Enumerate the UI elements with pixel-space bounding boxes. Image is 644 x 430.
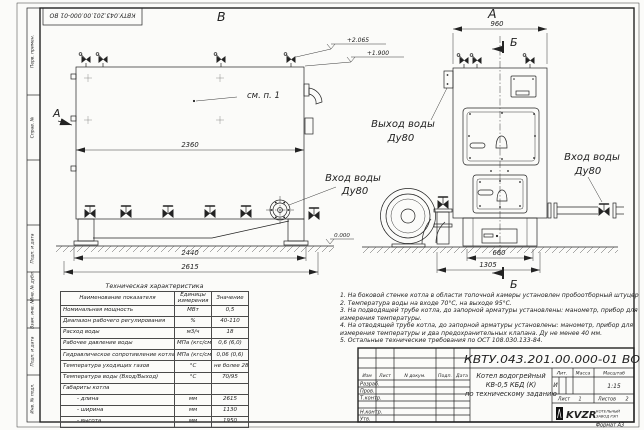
dim-2440: 2440 — [181, 249, 198, 257]
inlet-flange-side — [266, 196, 294, 224]
note-line: 1. На боковой стенке котла в области топ… — [340, 292, 638, 300]
spec-cell-value: не более 280 — [212, 361, 249, 372]
company-logo-text: KVZR — [566, 410, 596, 421]
rear-nozzle-flange — [304, 84, 309, 96]
spec-col-value: Значение — [212, 292, 249, 306]
dim-2360: 2360 — [181, 141, 198, 149]
spec-cell-units: МВт — [175, 306, 212, 317]
sheet-label: Лист — [557, 397, 570, 403]
see-note-label: см. п. 1 — [247, 91, 280, 101]
section-b-top-label: Б — [510, 36, 518, 49]
outlet-flange-front — [444, 71, 453, 88]
rotated-stamp: КВТУ.043.201.00.000-01 ВО — [49, 12, 135, 19]
view-arrow-a-label: А — [52, 107, 61, 120]
spec-cell-name: Габариты котла — [61, 383, 175, 394]
view-b-side: В см. п. 1 А 2360 — [52, 9, 404, 275]
spec-row: Расход водым3/ч18 — [61, 328, 249, 339]
dim-1305: 1305 — [479, 261, 496, 269]
drawing-sheet: Перв. примен. Справ. № Подп. и дата Инв.… — [0, 0, 644, 430]
spec-cell-value: 0,5 — [212, 306, 249, 317]
dim-960: 960 — [491, 20, 504, 28]
elevation-1900: +1.900 — [367, 50, 389, 57]
doc-title-line3: по техническому заданию — [465, 390, 557, 398]
sig-header: Дата — [455, 373, 468, 379]
spec-cell-value: 2615 — [212, 394, 249, 405]
spec-row: - ширинамм1130 — [61, 405, 249, 416]
margin-label: Инв. № подл. — [30, 383, 36, 413]
spec-cell-name: Температура уходящих газов — [61, 361, 175, 372]
sig-row-label: Т.контр. — [360, 396, 382, 402]
spec-col-name: Наименование показателя — [61, 292, 175, 306]
doc-title-line1: Котел водогрейный — [476, 372, 546, 380]
mass-header: Масса — [576, 371, 591, 377]
label-inlet-side-1: Вход воды — [325, 173, 381, 184]
view-a-front: А 960 Б — [362, 6, 624, 291]
sheets-value: 2 — [625, 397, 628, 403]
margin-label: Инв. № дубл. — [30, 271, 36, 301]
dim-2615: 2615 — [181, 263, 198, 271]
sig-row-label: Утв. — [360, 417, 371, 423]
spec-cell-units — [175, 383, 212, 394]
sig-row-label: Разраб. — [360, 382, 380, 388]
spec-row: Температура уходящих газов°Сне более 280 — [61, 361, 249, 372]
view-a-label: А — [487, 6, 497, 21]
company-logo: KVZR КОТЕЛЬНЫЙ ЗАВОД РЭП — [556, 407, 620, 421]
scale-value: 1:15 — [607, 383, 621, 390]
spec-cell-name: Расход воды — [61, 328, 175, 339]
format-label: Формат А3 — [596, 423, 624, 429]
doc-number: КВТУ.043.201.00.000-01 ВО — [464, 353, 640, 366]
label-inlet-front-1: Вход воды — [564, 152, 620, 163]
spec-row: Диапазон рабочего регулирования%40-110 — [61, 317, 249, 328]
label-inlet-front-2: Ду80 — [574, 166, 601, 177]
spec-cell-name: Диапазон рабочего регулирования — [61, 317, 175, 328]
doc-title-line2: КВ-0,5 КБД (К) — [486, 381, 536, 389]
spec-cell-units: м3/ч — [175, 328, 212, 339]
fan-pipe-valve — [434, 197, 452, 244]
sig-header: Изм — [362, 373, 372, 379]
sig-row-label: Н.контр. — [360, 410, 382, 416]
spec-row: Рабочее давление водыМПа (кгс/см2)0,6 (6… — [61, 339, 249, 350]
spec-cell-units: % — [175, 317, 212, 328]
spec-cell-value: 1130 — [212, 405, 249, 416]
note-line: 4. На отводящей трубе котла, до запорной… — [340, 322, 638, 330]
sig-header: Лист — [378, 373, 391, 379]
sig-header: N докум. — [404, 373, 425, 379]
inlet-pipe-front — [548, 203, 624, 218]
scale-header: Масштаб — [603, 371, 625, 377]
blower-fan — [381, 189, 446, 248]
spec-cell-units: мм — [175, 405, 212, 416]
spec-cell-units: °С — [175, 361, 212, 372]
spec-table: Техническая характеристика Наименование … — [60, 283, 249, 428]
spec-table-body: Номинальная мощностьМВт0,5Диапазон рабоч… — [61, 306, 249, 428]
spec-cell-units: мм — [175, 394, 212, 405]
elevation-0000: 0.000 — [334, 233, 350, 239]
label-outlet-front-1: Выход воды — [371, 119, 435, 130]
spec-cell-name: Рабочее давление воды — [61, 339, 175, 350]
spec-cell-value: 40-110 — [212, 317, 249, 328]
spec-cell-value — [212, 383, 249, 394]
spec-cell-name: - высота — [61, 416, 175, 427]
margin-label: Справ. № — [30, 116, 36, 138]
spec-col-units: Единицы измерения — [175, 292, 212, 306]
margin-label: Взам. инв. № — [30, 299, 36, 329]
spec-cell-units: °С — [175, 372, 212, 383]
spec-cell-units: мм — [175, 416, 212, 427]
spec-cell-name: Гидравлическое сопротивление котла — [61, 350, 175, 361]
section-b-bottom-label: Б — [510, 278, 518, 291]
company-name-line1: КОТЕЛЬНЫЙ — [596, 409, 620, 414]
notes-block: 1. На боковой стенке котла в области топ… — [340, 292, 638, 345]
spec-row: Габариты котла — [61, 383, 249, 394]
label-outlet-front-2: Ду80 — [387, 133, 414, 144]
spec-cell-value: 18 — [212, 328, 249, 339]
spec-cell-units: МПа (кгс/см2) — [175, 350, 212, 361]
margin-label: Подп. и дата — [30, 233, 36, 263]
spec-cell-name: - длина — [61, 394, 175, 405]
spec-cell-value: 0,6 (6,0) — [212, 339, 249, 350]
spec-cell-name: Температура воды (Вход/Выход) — [61, 372, 175, 383]
sheet-value: 1 — [578, 397, 581, 403]
margin-label: Перв. примен. — [30, 35, 36, 68]
view-b-label: В — [217, 9, 226, 24]
spec-row: - высотамм1950 — [61, 416, 249, 427]
spec-table-title: Техническая характеристика — [60, 283, 249, 290]
sheets-label: Листов — [597, 397, 616, 403]
lit-header: Лит. — [556, 371, 568, 377]
spec-cell-value: 0,06 (0,6) — [212, 350, 249, 361]
label-inlet-side-2: Ду80 — [341, 186, 368, 197]
dim-660: 660 — [493, 249, 506, 257]
spec-cell-name: - ширина — [61, 405, 175, 416]
company-name-line2: ЗАВОД РЭП — [596, 415, 618, 419]
lower-door — [473, 175, 527, 213]
spec-row: Гидравлическое сопротивление котлаМПа (к… — [61, 350, 249, 361]
spec-row: - длинамм2615 — [61, 394, 249, 405]
spec-cell-value: 1950 — [212, 416, 249, 427]
margin-label: Подп. и дата — [30, 336, 36, 366]
elevation-2065: +2.065 — [347, 37, 369, 44]
upper-door — [463, 108, 539, 165]
note-line: 5. Остальные технические требования по О… — [340, 337, 638, 345]
sig-row-label: Пров. — [360, 389, 375, 395]
spec-cell-value: 70/95 — [212, 372, 249, 383]
spec-row: Номинальная мощностьМВт0,5 — [61, 306, 249, 317]
note-line: 3. На подводящей трубе котла, до запорно… — [340, 307, 638, 315]
spec-row: Температура воды (Вход/Выход)°С70/95 — [61, 372, 249, 383]
spec-cell-name: Номинальная мощность — [61, 306, 175, 317]
spec-cell-units: МПа (кгс/см2) — [175, 339, 212, 350]
sig-header: Подп. — [438, 373, 452, 379]
title-block: КВТУ.043.201.00.000-01 ВО Изм Лист N док… — [358, 348, 640, 429]
lit-value: И — [553, 382, 558, 389]
note-line: 2. Температура воды на входе 70°С, на вы… — [340, 300, 638, 308]
